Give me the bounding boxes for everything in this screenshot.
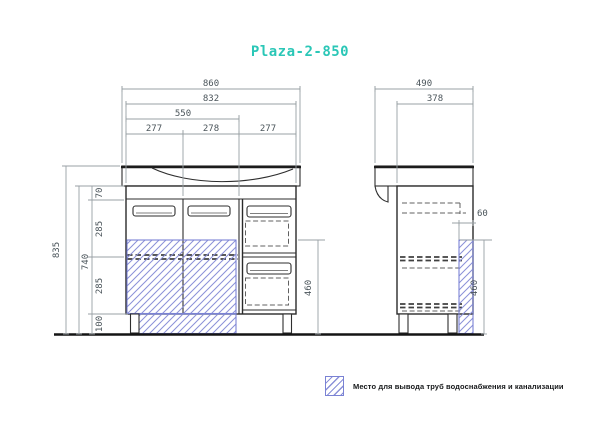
dim-side-total-depth: 490 <box>416 79 432 89</box>
front-view <box>121 166 301 334</box>
dim-front-door2-width: 278 <box>203 124 219 134</box>
dim-front-drawers-width: 277 <box>260 124 276 134</box>
dim-front-body-height: 740 <box>81 254 91 270</box>
basin-lip-profile <box>375 186 388 202</box>
vanity-technical-drawing: 860 832 550 277 278 277 835 <box>0 0 600 424</box>
dim-front-body-width: 832 <box>203 94 219 104</box>
door-left-handle <box>133 206 175 216</box>
front-left-dimensions: 835 740 70 285 285 100 <box>52 166 128 334</box>
front-right-foot <box>283 314 292 333</box>
dim-front-total-height: 835 <box>52 242 62 258</box>
door-right-handle <box>188 206 230 216</box>
technical-drawing-page: Plaza-2-850 <box>0 0 600 424</box>
dim-front-upper-section: 285 <box>95 221 105 237</box>
dim-front-feet-height: 100 <box>95 316 105 332</box>
plumbing-hatch-front-upper <box>127 240 236 314</box>
dim-front-top-rail: 70 <box>95 188 105 199</box>
dim-side-pipe-height: 460 <box>470 280 480 296</box>
side-view <box>374 166 474 334</box>
side-back-foot <box>448 314 457 333</box>
dim-front-pipe-height: 460 <box>304 280 314 296</box>
dim-front-lower-section: 285 <box>95 278 105 294</box>
side-front-foot <box>399 314 408 333</box>
legend: Место для вывода труб водоснабжения и ка… <box>325 376 564 396</box>
dim-front-door1-width: 277 <box>146 124 162 134</box>
plumbing-hatch-front-lower <box>133 314 236 334</box>
sink-deck-side <box>375 166 473 186</box>
dim-front-total-width: 860 <box>203 79 219 89</box>
front-pipe-height-dimension: 460 <box>298 240 325 334</box>
front-left-foot <box>131 314 140 333</box>
dim-front-doors-width: 550 <box>175 109 191 119</box>
legend-hatch-swatch-icon <box>325 376 344 396</box>
dim-side-pipe-zone: 60 <box>477 209 488 219</box>
legend-text: Место для вывода труб водоснабжения и ка… <box>353 382 564 391</box>
dim-side-body-depth: 378 <box>427 94 443 104</box>
